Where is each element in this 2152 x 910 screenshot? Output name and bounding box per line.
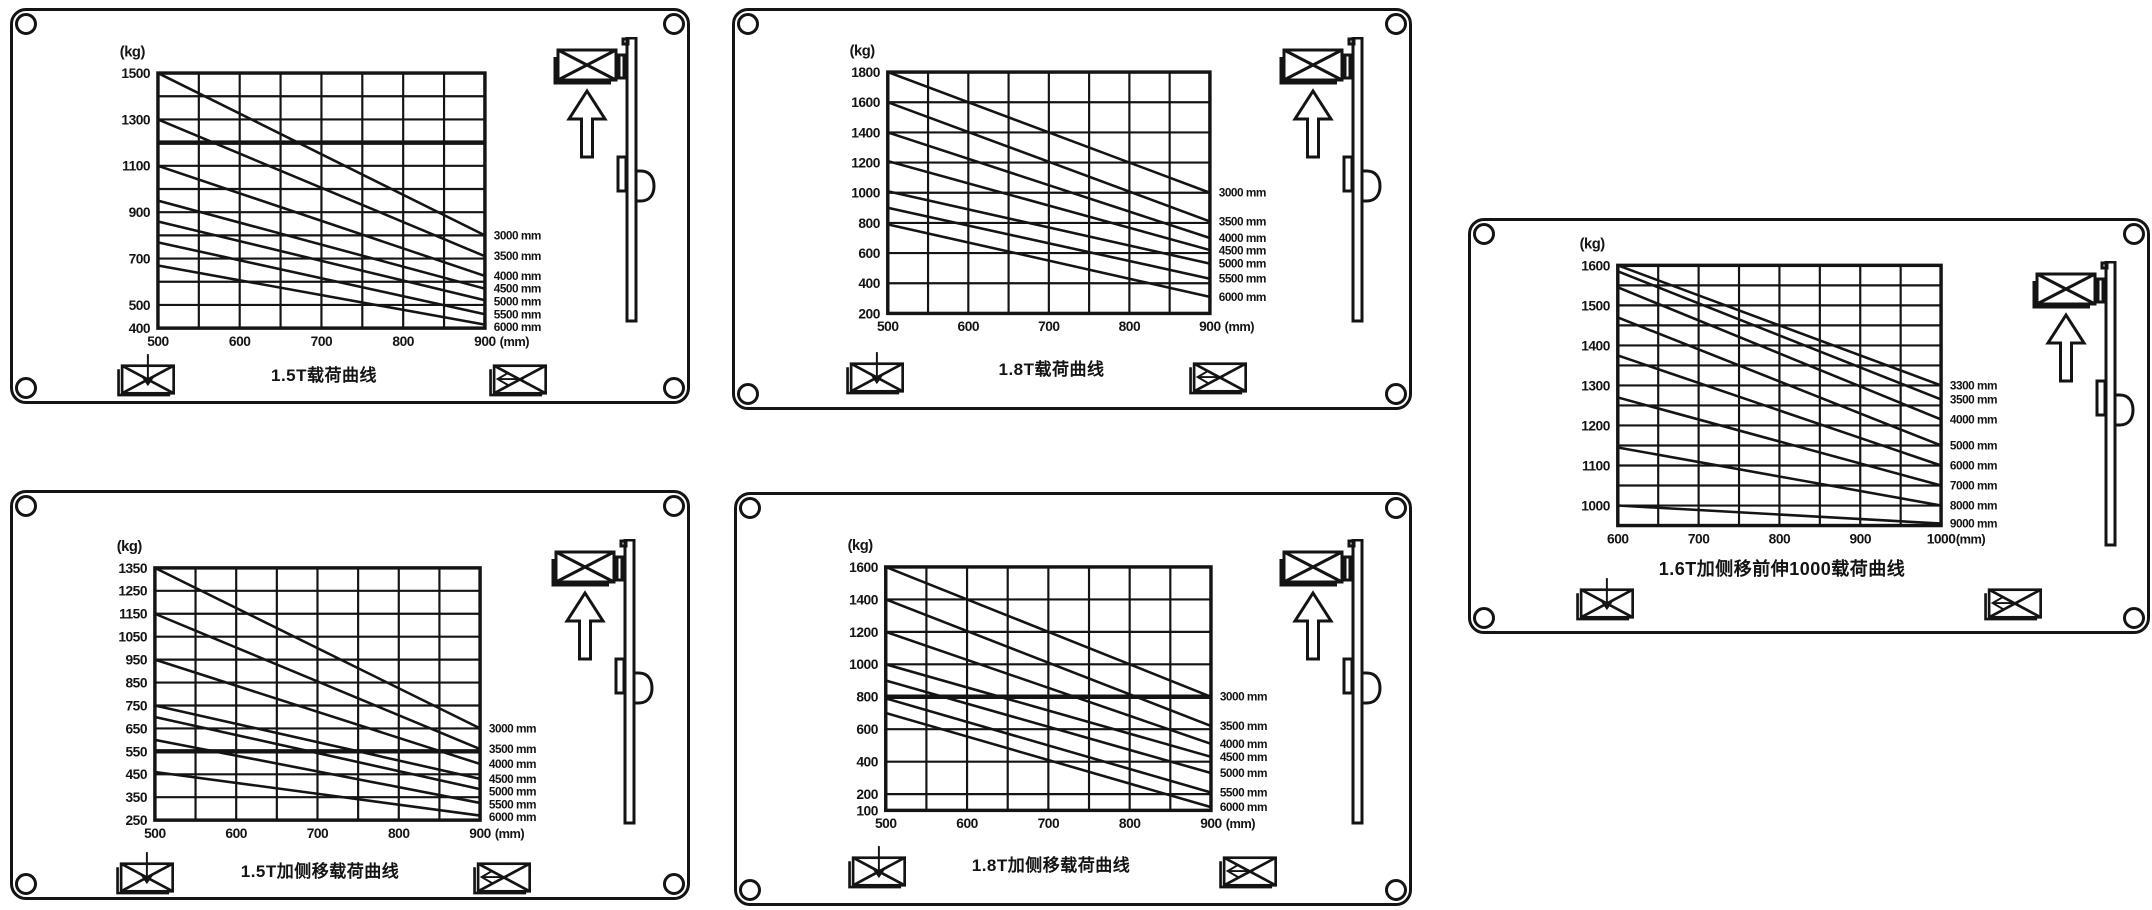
svg-text:400: 400 [856, 755, 878, 770]
svg-text:600: 600 [1607, 531, 1629, 546]
load-side-shift-icon [487, 353, 551, 398]
load-lower-icon [1574, 577, 1638, 622]
svg-text:800: 800 [388, 826, 410, 841]
svg-text:700: 700 [307, 826, 329, 841]
svg-text:1500: 1500 [121, 66, 150, 81]
svg-text:4500 mm: 4500 mm [1220, 750, 1267, 764]
svg-text:750: 750 [125, 698, 147, 713]
svg-text:(mm): (mm) [500, 334, 530, 349]
svg-text:600: 600 [229, 334, 251, 349]
chart-caption: 1.5T加侧移载荷曲线 [155, 857, 485, 882]
svg-text:600: 600 [956, 816, 978, 831]
svg-text:900: 900 [1849, 531, 1871, 546]
svg-text:(mm): (mm) [1956, 531, 1986, 546]
svg-text:950: 950 [125, 653, 147, 668]
svg-text:400: 400 [858, 276, 880, 291]
svg-text:800: 800 [1119, 816, 1141, 831]
svg-text:3500 mm: 3500 mm [1950, 392, 1997, 406]
svg-text:5000 mm: 5000 mm [1219, 257, 1266, 271]
svg-text:5000 mm: 5000 mm [1950, 438, 1997, 452]
svg-text:1400: 1400 [849, 592, 879, 607]
plate-1-5t-sideshift-load-curve: 3000 mm3500 mm4000 mm4500 mm5000 mm5500 … [10, 490, 690, 900]
mast-lift-icon [2027, 261, 2137, 556]
svg-text:1000: 1000 [1927, 531, 1957, 546]
svg-text:1100: 1100 [122, 159, 151, 174]
svg-text:1100: 1100 [1582, 458, 1611, 473]
svg-text:700: 700 [1038, 816, 1060, 831]
svg-text:900: 900 [469, 826, 491, 841]
svg-text:1250: 1250 [118, 584, 148, 599]
svg-text:500: 500 [877, 319, 899, 334]
svg-text:1050: 1050 [118, 630, 148, 645]
svg-text:5500 mm: 5500 mm [1220, 785, 1267, 799]
svg-text:9000 mm: 9000 mm [1950, 516, 1997, 530]
svg-text:4000 mm: 4000 mm [489, 757, 536, 771]
svg-text:1600: 1600 [851, 95, 881, 110]
load-side-shift-icon [1982, 577, 2046, 622]
svg-text:1300: 1300 [1581, 378, 1611, 393]
plate-1-5t-load-curve: 3000 mm3500 mm4000 mm4500 mm5000 mm5500 … [10, 8, 690, 404]
svg-text:3500 mm: 3500 mm [489, 742, 536, 756]
mast-lift-icon [1274, 539, 1384, 834]
svg-text:1600: 1600 [1581, 258, 1611, 273]
svg-text:3000 mm: 3000 mm [494, 228, 541, 242]
svg-text:600: 600 [856, 722, 878, 737]
chart-caption: 1.8T载荷曲线 [888, 355, 1215, 380]
svg-text:500: 500 [144, 826, 166, 841]
svg-text:(kg): (kg) [850, 43, 876, 59]
svg-text:(mm): (mm) [495, 826, 525, 841]
svg-text:1200: 1200 [1581, 418, 1611, 433]
svg-text:800: 800 [856, 690, 878, 705]
svg-text:1350: 1350 [118, 561, 148, 576]
svg-text:5000 mm: 5000 mm [1220, 766, 1267, 780]
svg-text:(kg): (kg) [1580, 237, 1606, 253]
svg-text:450: 450 [125, 767, 147, 782]
svg-text:1400: 1400 [851, 125, 881, 140]
svg-text:600: 600 [958, 319, 980, 334]
svg-text:8000 mm: 8000 mm [1950, 498, 1997, 512]
svg-text:800: 800 [858, 216, 880, 231]
svg-text:700: 700 [129, 251, 151, 266]
svg-text:4000 mm: 4000 mm [1950, 412, 1997, 426]
svg-text:600: 600 [858, 246, 880, 261]
svg-text:1000: 1000 [1581, 498, 1611, 513]
svg-text:1600: 1600 [849, 560, 879, 575]
svg-text:(mm): (mm) [1226, 816, 1256, 831]
chart-caption: 1.5T载荷曲线 [158, 361, 490, 386]
svg-text:(kg): (kg) [117, 539, 143, 555]
svg-text:6000 mm: 6000 mm [494, 320, 541, 334]
mast-lift-icon [1274, 37, 1384, 332]
svg-text:1500: 1500 [1581, 298, 1611, 313]
svg-text:1200: 1200 [849, 625, 879, 640]
svg-text:200: 200 [856, 787, 878, 802]
svg-text:1400: 1400 [1581, 338, 1611, 353]
svg-text:3000 mm: 3000 mm [1220, 690, 1267, 704]
svg-text:500: 500 [129, 298, 151, 313]
svg-text:550: 550 [125, 744, 147, 759]
svg-text:1000: 1000 [851, 186, 881, 201]
svg-text:1200: 1200 [851, 156, 881, 171]
svg-text:3300 mm: 3300 mm [1950, 378, 1997, 392]
svg-text:4000 mm: 4000 mm [1220, 737, 1267, 751]
plate-1-6t-sideshift-reach-load-curve: 3300 mm3500 mm4000 mm5000 mm6000 mm7000 … [1468, 218, 2150, 634]
svg-text:6000 mm: 6000 mm [1950, 458, 1997, 472]
plate-1-8t-sideshift-load-curve: 3000 mm3500 mm4000 mm4500 mm5000 mm5500 … [734, 492, 1412, 906]
svg-text:(kg): (kg) [848, 538, 874, 554]
svg-text:6000 mm: 6000 mm [489, 810, 536, 824]
svg-text:3500 mm: 3500 mm [494, 249, 541, 263]
svg-text:1000: 1000 [849, 657, 879, 672]
svg-text:700: 700 [1038, 319, 1060, 334]
svg-text:800: 800 [1119, 319, 1141, 334]
chart-caption: 1.8T加侧移载荷曲线 [886, 851, 1216, 876]
svg-text:(kg): (kg) [120, 44, 146, 60]
svg-text:3500 mm: 3500 mm [1219, 214, 1266, 228]
svg-text:6000 mm: 6000 mm [1220, 800, 1267, 814]
svg-text:7000 mm: 7000 mm [1950, 478, 1997, 492]
svg-text:900: 900 [129, 205, 151, 220]
load-side-shift-icon [1217, 845, 1281, 890]
svg-text:3500 mm: 3500 mm [1220, 719, 1267, 733]
svg-text:650: 650 [125, 721, 147, 736]
svg-text:900: 900 [1199, 319, 1221, 334]
svg-text:500: 500 [875, 816, 897, 831]
svg-text:1150: 1150 [119, 607, 148, 622]
plate-1-8t-load-curve: 3000 mm3500 mm4000 mm4500 mm5000 mm5500 … [732, 8, 1412, 410]
svg-text:900: 900 [1200, 816, 1222, 831]
mast-lift-icon [546, 539, 656, 834]
svg-text:1800: 1800 [851, 65, 881, 80]
svg-text:3000 mm: 3000 mm [1219, 186, 1266, 200]
svg-text:700: 700 [1688, 531, 1710, 546]
mast-lift-icon [548, 37, 658, 332]
chart-caption: 1.6T加侧移前伸1000载荷曲线 [1618, 555, 1946, 581]
svg-text:850: 850 [125, 675, 147, 690]
drawing-canvas: 3000 mm3500 mm4000 mm4500 mm5000 mm5500 … [0, 0, 2152, 910]
svg-text:900: 900 [474, 334, 496, 349]
svg-text:800: 800 [1769, 531, 1791, 546]
svg-text:600: 600 [225, 826, 247, 841]
svg-text:6000 mm: 6000 mm [1219, 290, 1266, 304]
svg-text:700: 700 [311, 334, 333, 349]
svg-text:500: 500 [147, 334, 169, 349]
svg-text:3000 mm: 3000 mm [489, 721, 536, 735]
svg-text:5500 mm: 5500 mm [1219, 272, 1266, 286]
svg-text:800: 800 [392, 334, 414, 349]
svg-text:1300: 1300 [121, 112, 150, 127]
svg-text:(mm): (mm) [1225, 319, 1255, 334]
svg-text:350: 350 [125, 790, 147, 805]
